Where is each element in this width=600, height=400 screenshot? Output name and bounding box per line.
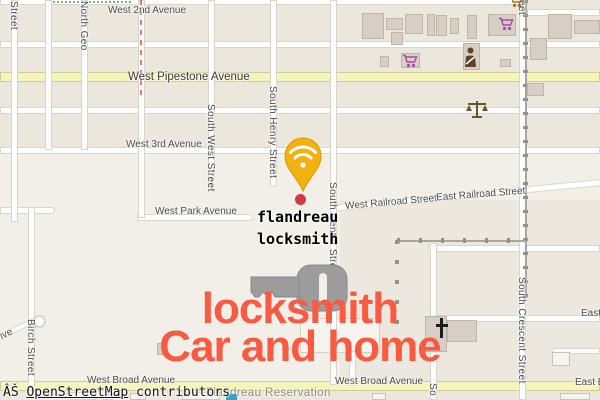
building-outline bbox=[372, 393, 386, 400]
road-street-left bbox=[11, 0, 18, 222]
road bbox=[0, 41, 600, 48]
road bbox=[428, 245, 600, 252]
scales-of-justice-icon bbox=[465, 100, 489, 120]
building bbox=[386, 18, 403, 30]
street-label: West Pipestone Avenue bbox=[128, 71, 250, 83]
road-west-pipestone-avenue bbox=[0, 72, 600, 82]
building bbox=[405, 14, 423, 34]
building bbox=[548, 14, 572, 39]
street-label: South Henry Street bbox=[267, 86, 278, 178]
building bbox=[574, 20, 600, 34]
building bbox=[362, 13, 384, 39]
building bbox=[467, 15, 477, 39]
overlay-caption: locksmith Car and home bbox=[0, 290, 600, 366]
road bbox=[45, 0, 52, 150]
poi-name-label: flandreau locksmith bbox=[257, 206, 338, 250]
street-label: East Broad Avenue bbox=[575, 377, 600, 388]
street-label: West 2nd Avenue bbox=[108, 5, 186, 16]
street-label: South West Street bbox=[205, 104, 216, 192]
building-outline bbox=[560, 393, 590, 400]
building bbox=[500, 59, 511, 67]
building bbox=[450, 18, 459, 34]
building bbox=[427, 14, 435, 36]
shopping-cart-icon bbox=[498, 17, 514, 31]
railway-ties bbox=[397, 238, 527, 243]
railway-ties bbox=[523, 0, 528, 298]
attribution-prefix: ÂŠ bbox=[3, 385, 26, 400]
footpath-dotted bbox=[53, 1, 131, 3]
overlay-caption-line2: Car and home bbox=[0, 328, 600, 366]
road bbox=[0, 107, 600, 114]
poi-name-line2: locksmith bbox=[257, 228, 338, 250]
street-label: So bbox=[427, 383, 438, 396]
building bbox=[391, 32, 403, 45]
street-label: West Broad Avenue bbox=[335, 376, 423, 387]
building bbox=[530, 38, 547, 60]
mannequin-shop-icon bbox=[463, 47, 478, 68]
map-canvas[interactable]: West 2nd Avenue West Pipestone Avenue We… bbox=[0, 0, 600, 400]
poi-dot[interactable] bbox=[295, 194, 306, 205]
street-label: West Park Avenue bbox=[155, 206, 237, 217]
building bbox=[527, 83, 544, 96]
osm-attribution-link[interactable]: OpenStreetMap bbox=[26, 385, 128, 400]
street-label: Street bbox=[8, 1, 19, 30]
shopping-cart-icon bbox=[402, 54, 418, 68]
shopping-cart-icon bbox=[508, 0, 524, 8]
map-attribution: ÂŠ OpenStreetMap contributors bbox=[3, 385, 230, 400]
building bbox=[380, 56, 389, 67]
street-label: North Geo bbox=[78, 1, 89, 51]
street-label: West 3rd Avenue bbox=[126, 139, 202, 150]
building bbox=[436, 15, 447, 36]
poi-name-line1: flandreau bbox=[257, 206, 338, 228]
location-pin[interactable] bbox=[283, 137, 323, 193]
attribution-suffix: contributors bbox=[128, 385, 230, 400]
